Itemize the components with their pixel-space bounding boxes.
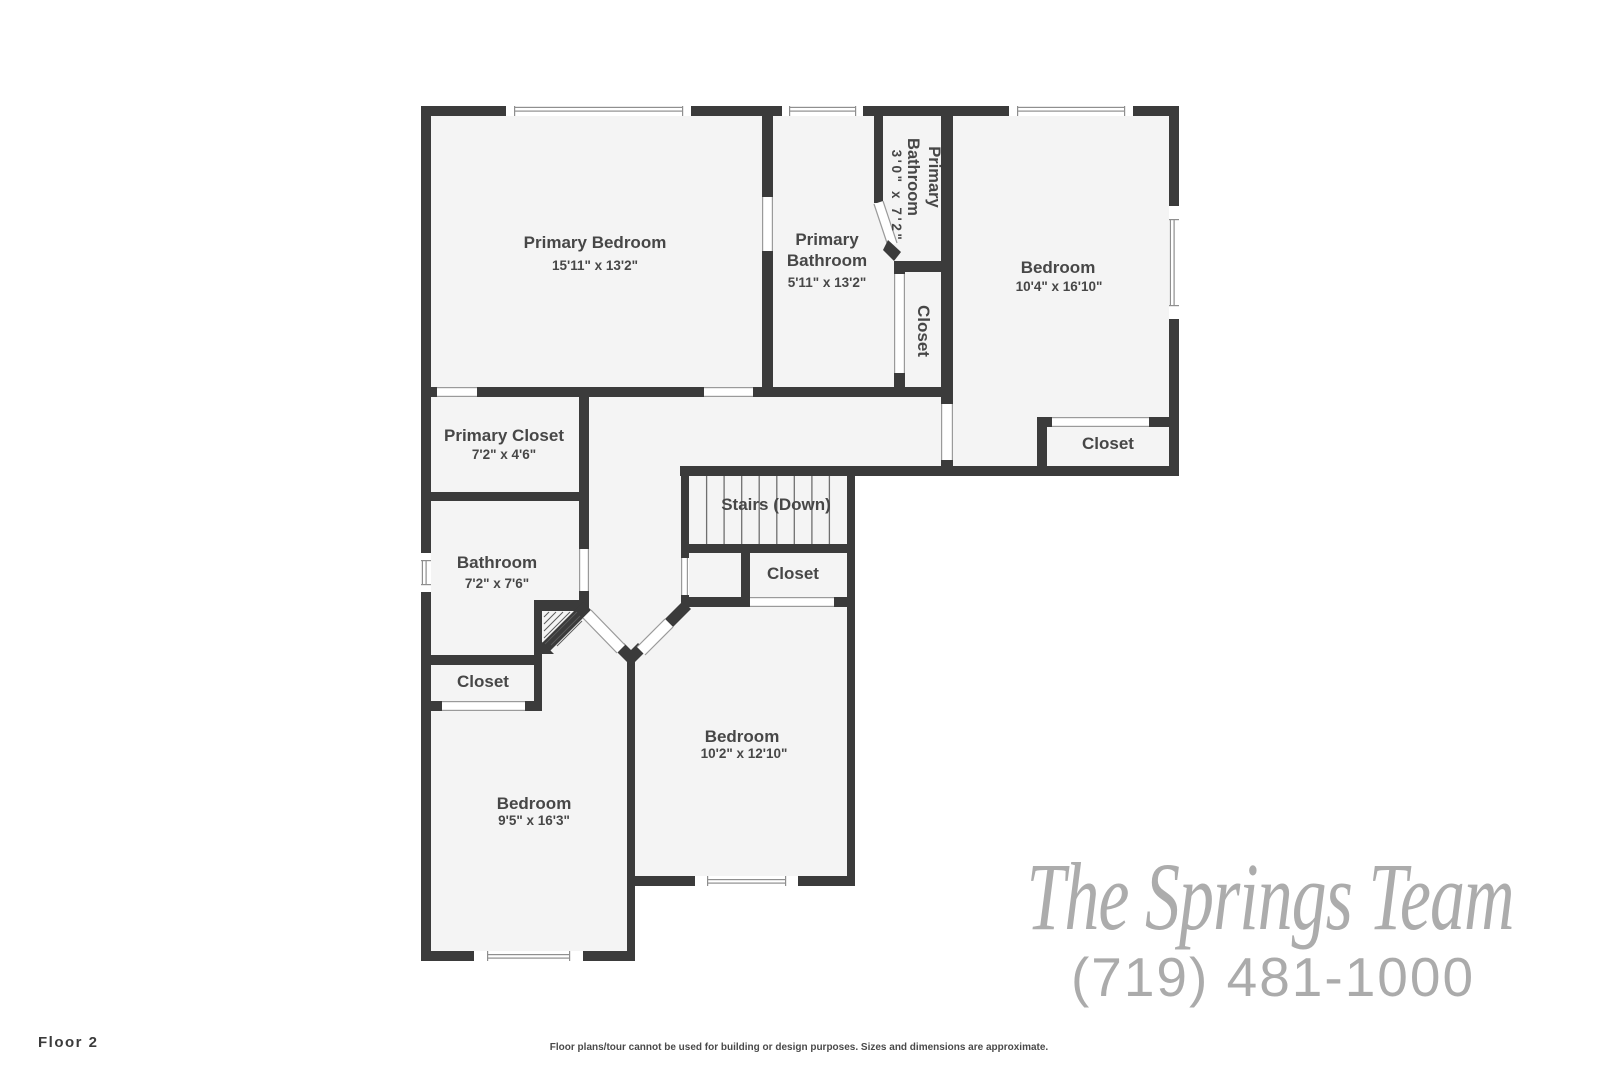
svg-text:5'11" x 13'2": 5'11" x 13'2"	[788, 275, 867, 290]
svg-text:Primary: Primary	[795, 230, 859, 249]
svg-text:Stairs (Down): Stairs (Down)	[721, 495, 831, 514]
svg-text:Closet: Closet	[457, 672, 509, 691]
svg-text:15'11" x 13'2": 15'11" x 13'2"	[552, 258, 638, 273]
svg-text:9'5" x 16'3": 9'5" x 16'3"	[498, 813, 570, 828]
svg-text:The Springs Team: The Springs Team	[1027, 844, 1514, 950]
svg-text:Closet: Closet	[914, 305, 933, 357]
svg-text:(719) 481-1000: (719) 481-1000	[1071, 946, 1475, 1008]
svg-text:Bathroom: Bathroom	[787, 251, 867, 270]
svg-text:Floor plans/tour cannot be use: Floor plans/tour cannot be used for buil…	[550, 1042, 1049, 1053]
svg-text:Bedroom: Bedroom	[497, 794, 572, 813]
svg-text:7'2" x 7'6": 7'2" x 7'6"	[465, 576, 529, 591]
svg-text:Bathroom: Bathroom	[904, 138, 922, 216]
svg-text:Primary Closet: Primary Closet	[444, 426, 564, 445]
svg-text:3'0" x 7'2": 3'0" x 7'2"	[889, 150, 904, 243]
svg-text:10'4" x 16'10": 10'4" x 16'10"	[1016, 279, 1103, 294]
svg-text:Bathroom: Bathroom	[457, 553, 537, 572]
svg-text:10'2" x 12'10": 10'2" x 12'10"	[701, 746, 788, 761]
svg-text:Primary Bedroom: Primary Bedroom	[524, 233, 667, 252]
svg-text:Floor 2: Floor 2	[38, 1034, 99, 1051]
svg-text:Primary: Primary	[925, 146, 943, 208]
svg-text:Bedroom: Bedroom	[1021, 258, 1096, 277]
svg-text:7'2" x 4'6": 7'2" x 4'6"	[472, 447, 536, 462]
svg-text:Bedroom: Bedroom	[705, 727, 780, 746]
svg-text:Closet: Closet	[1082, 434, 1134, 453]
svg-text:Closet: Closet	[767, 564, 819, 583]
